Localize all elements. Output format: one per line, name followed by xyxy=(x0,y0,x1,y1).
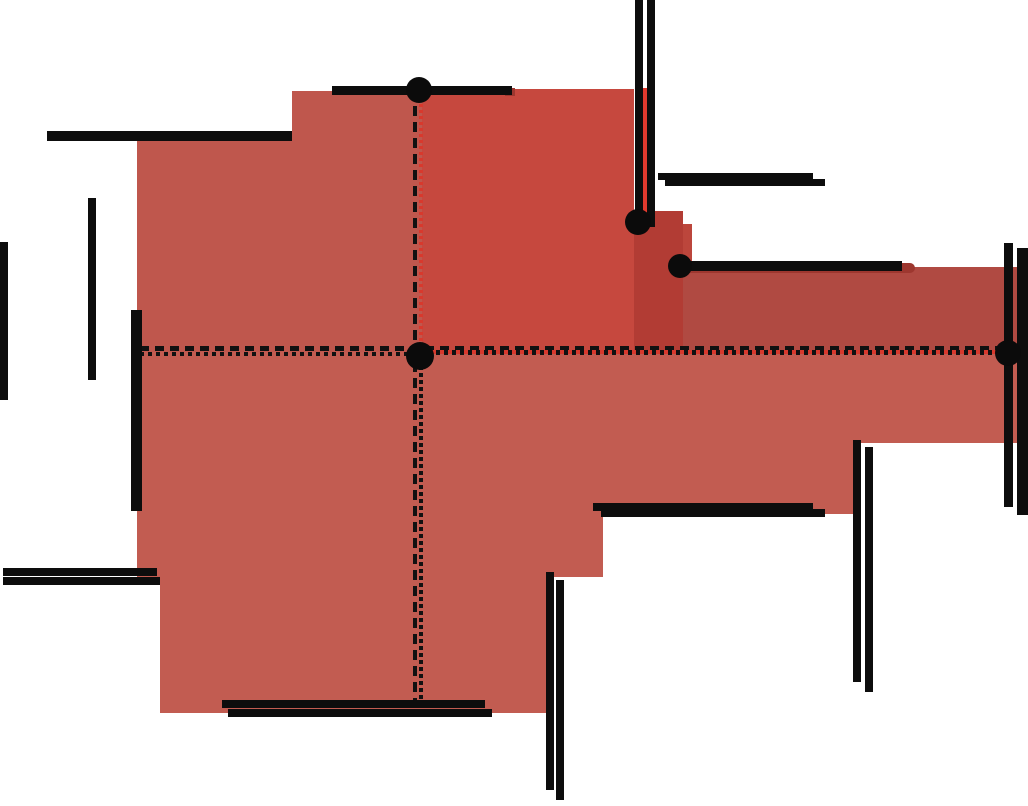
segment-h-arm xyxy=(680,261,902,271)
segment-h-upper-right-b xyxy=(665,179,825,186)
segment-v-far-right-b xyxy=(1017,248,1028,515)
dashed-vertical-dense-lower xyxy=(419,352,423,702)
dashed-vertical-main xyxy=(413,90,417,702)
segment-v-left-mid xyxy=(88,198,96,380)
region-q2-left-upper xyxy=(137,137,292,352)
dashed-vertical-red-upper xyxy=(419,92,423,352)
dot-upper-right xyxy=(625,209,651,235)
region-south-slab-1 xyxy=(137,352,1018,443)
segment-h-bottom-b xyxy=(228,709,492,717)
dashed-horizontal-dense-left xyxy=(140,352,420,356)
dot-right-end xyxy=(995,340,1021,366)
segment-v-bottom-a xyxy=(546,572,554,790)
segment-h-left-lower-b xyxy=(3,577,160,585)
segment-v-far-right-a xyxy=(1004,243,1013,507)
segment-h-bottom-a xyxy=(222,700,485,708)
dot-arm-left-end xyxy=(668,254,692,278)
segment-v-red-border xyxy=(131,310,142,511)
segment-v-top-b xyxy=(647,0,655,227)
region-q2-left-step xyxy=(292,91,422,352)
dot-query-point xyxy=(406,342,434,370)
segment-h-mid-right-b xyxy=(601,509,825,517)
segment-v-left-edge xyxy=(0,242,8,400)
figure-canvas: Q2 Q3 Q4 q xyxy=(0,0,1028,806)
region-south-slab-3 xyxy=(137,514,603,577)
segment-h-topleft xyxy=(47,131,292,141)
segment-v-bottom-b xyxy=(556,580,564,800)
dashed-horizontal-dense-right xyxy=(420,350,1008,355)
dot-top-segment xyxy=(406,77,432,103)
segment-h-left-lower-a xyxy=(3,568,157,576)
region-q2-right-dark xyxy=(422,89,634,352)
region-south-slab-4 xyxy=(160,577,550,713)
segment-v-right-mid-b xyxy=(865,447,873,692)
segment-v-top-a xyxy=(635,0,643,211)
segment-v-right-mid-a xyxy=(853,440,861,682)
region-right-arm-dark xyxy=(683,267,1018,352)
